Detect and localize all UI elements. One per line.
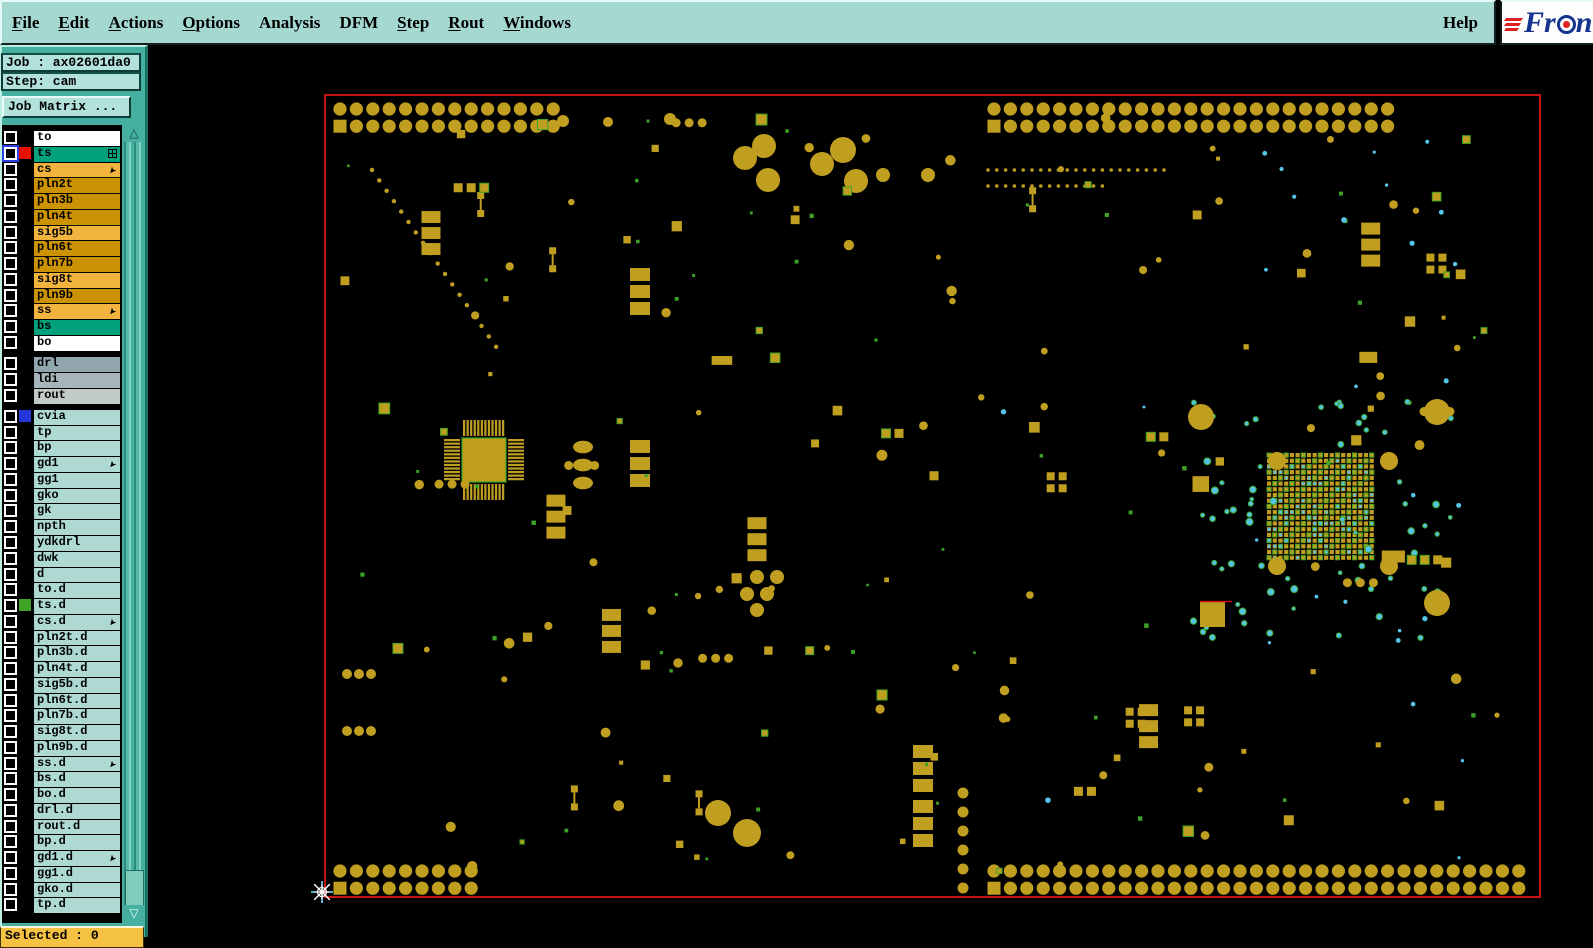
layer-checkbox-gd1.d[interactable] xyxy=(4,851,17,864)
frontline-logo: Fr n xyxy=(1500,0,1593,45)
layer-checkbox-ts[interactable] xyxy=(4,147,17,160)
menu-item-rout[interactable]: Rout xyxy=(448,13,484,33)
layer-row-to.d: to.d xyxy=(2,582,122,598)
layer-row-pln6t.d: pln6t.d xyxy=(2,693,122,709)
layer-row-rout.d: rout.d xyxy=(2,819,122,835)
layer-checkbox-gk[interactable] xyxy=(4,504,17,517)
layer-label-gd1.d[interactable]: gd1.d➤ xyxy=(33,850,121,867)
layer-row-ts: ts xyxy=(2,146,122,162)
layer-label-bs.d[interactable]: bs.d xyxy=(33,771,121,788)
layer-row-pln7b.d: pln7b.d xyxy=(2,708,122,724)
layer-label-to[interactable]: to xyxy=(33,130,121,147)
pcb-crosshair-cursor xyxy=(311,881,333,903)
layer-label-rout[interactable]: rout xyxy=(33,388,121,405)
layer-checkbox-drl.d[interactable] xyxy=(4,804,17,817)
layer-label-ydkdrl[interactable]: ydkdrl xyxy=(33,535,121,552)
layer-checkbox-cs[interactable] xyxy=(4,163,17,176)
layer-row-bp.d: bp.d xyxy=(2,834,122,850)
layer-checkbox-gg1.d[interactable] xyxy=(4,867,17,880)
selected-count-bar: Selected : 0 xyxy=(0,926,144,948)
job-matrix-button[interactable]: Job Matrix ... xyxy=(2,96,131,118)
layer-row-dwk: dwk xyxy=(2,551,122,567)
layer-row-cs: cs➤ xyxy=(2,162,122,178)
layer-label-pln7b.d[interactable]: pln7b.d xyxy=(33,708,121,725)
layer-row-pln2t: pln2t xyxy=(2,177,122,193)
layer-row-pln3b.d: pln3b.d xyxy=(2,645,122,661)
layer-checkbox-gko[interactable] xyxy=(4,489,17,502)
layer-label-pln6t[interactable]: pln6t xyxy=(33,240,121,257)
layer-label-sig8t[interactable]: sig8t xyxy=(33,272,121,289)
layer-label-tp.d[interactable]: tp.d xyxy=(33,897,121,914)
layer-checkbox-gko.d[interactable] xyxy=(4,883,17,896)
layer-checkbox-pln6t.d[interactable] xyxy=(4,694,17,707)
layer-row-d: d xyxy=(2,567,122,583)
layer-row-gg1: gg1 xyxy=(2,472,122,488)
menu-item-analysis[interactable]: Analysis xyxy=(259,13,320,33)
layer-label-gd1[interactable]: gd1➤ xyxy=(33,456,121,473)
menu-bar: FileEditActionsOptionsAnalysisDFMStepRou… xyxy=(0,0,1496,45)
layer-checkbox-ydkdrl[interactable] xyxy=(4,536,17,549)
layer-row-pln3b: pln3b xyxy=(2,193,122,209)
layer-checkbox-bo.d[interactable] xyxy=(4,788,17,801)
layer-label-bp[interactable]: bp xyxy=(33,440,121,457)
layer-label-pln3b.d[interactable]: pln3b.d xyxy=(33,645,121,662)
layer-row-sig5b.d: sig5b.d xyxy=(2,677,122,693)
layer-row-bs.d: bs.d xyxy=(2,771,122,787)
layer-label-pln9b.d[interactable]: pln9b.d xyxy=(33,740,121,757)
layer-row-gd1.d: gd1.d➤ xyxy=(2,850,122,866)
layer-color-swatch-cvia[interactable] xyxy=(19,410,31,422)
job-field: Job : ax02601da0 xyxy=(1,53,141,72)
layer-row-bs: bs xyxy=(2,319,122,335)
layer-checkbox-tp[interactable] xyxy=(4,426,17,439)
layer-checkbox-bp.d[interactable] xyxy=(4,835,17,848)
layer-checkbox-bs.d[interactable] xyxy=(4,772,17,785)
layer-checkbox-cs.d[interactable] xyxy=(4,615,17,628)
layer-checkbox-sig5b[interactable] xyxy=(4,226,17,239)
layer-label-npth[interactable]: npth xyxy=(33,519,121,536)
scroll-down-icon[interactable]: ▽ xyxy=(124,905,144,922)
layer-arrow-icon: ➤ xyxy=(105,305,119,318)
layer-label-ldi[interactable]: ldi xyxy=(33,372,121,389)
pcb-dotted-lines xyxy=(370,168,1166,349)
menu-item-edit[interactable]: Edit xyxy=(58,13,89,33)
layer-label-pln2t[interactable]: pln2t xyxy=(33,177,121,194)
layer-row-drl: drl xyxy=(2,356,122,372)
step-field: Step: cam xyxy=(1,72,141,91)
layer-checkbox-gd1[interactable] xyxy=(4,457,17,470)
layer-checkbox-pln7b.d[interactable] xyxy=(4,709,17,722)
layer-label-to.d[interactable]: to.d xyxy=(33,582,121,599)
layer-checkbox-pln7b[interactable] xyxy=(4,257,17,270)
layer-label-pln7b[interactable]: pln7b xyxy=(33,256,121,273)
menu-item-dfm[interactable]: DFM xyxy=(339,13,378,33)
layer-row-bo: bo xyxy=(2,335,122,351)
layer-checkbox-pln4t[interactable] xyxy=(4,210,17,223)
layer-row-to: to xyxy=(2,130,122,146)
layer-label-cs[interactable]: cs➤ xyxy=(33,162,121,179)
layer-row-gg1.d: gg1.d xyxy=(2,866,122,882)
layer-row-tp.d: tp.d xyxy=(2,897,122,913)
layer-checkbox-cvia[interactable] xyxy=(4,410,17,423)
layer-label-pln4t[interactable]: pln4t xyxy=(33,209,121,226)
menu-item-step[interactable]: Step xyxy=(397,13,429,33)
layer-checkbox-pln9b.d[interactable] xyxy=(4,741,17,754)
layer-label-gg1[interactable]: gg1 xyxy=(33,472,121,489)
layer-checkbox-dwk[interactable] xyxy=(4,552,17,565)
layer-row-gko: gko xyxy=(2,488,122,504)
layer-label-ss[interactable]: ss➤ xyxy=(33,303,121,320)
layer-row-rout: rout xyxy=(2,388,122,404)
layer-label-bo[interactable]: bo xyxy=(33,335,121,352)
layer-color-swatch-ts[interactable] xyxy=(19,147,31,159)
layer-checkbox-pln4t.d[interactable] xyxy=(4,662,17,675)
layer-arrow-icon: ➤ xyxy=(105,757,119,770)
layer-row-drl.d: drl.d xyxy=(2,803,122,819)
layer-list: totscs➤pln2tpln3bpln4tsig5bpln6tpln7bsig… xyxy=(2,125,122,923)
layer-row-gko.d: gko.d xyxy=(2,882,122,898)
layer-checkbox-bo[interactable] xyxy=(4,336,17,349)
layer-row-ss.d: ss.d➤ xyxy=(2,756,122,772)
layer-checkbox-pln9b[interactable] xyxy=(4,289,17,302)
logo-text-n: n xyxy=(1576,3,1593,43)
layer-checkbox-to.d[interactable] xyxy=(4,583,17,596)
layer-label-d[interactable]: d xyxy=(33,567,121,584)
layer-row-pln6t: pln6t xyxy=(2,240,122,256)
layer-checkbox-sig5b.d[interactable] xyxy=(4,678,17,691)
layer-label-pln3b[interactable]: pln3b xyxy=(33,193,121,210)
layer-label-bp.d[interactable]: bp.d xyxy=(33,834,121,851)
logo-target-icon xyxy=(1557,15,1576,34)
layer-list-scrollbar[interactable]: △ ▽ xyxy=(124,125,144,922)
layer-checkbox-ss.d[interactable] xyxy=(4,757,17,770)
layer-label-cs.d[interactable]: cs.d➤ xyxy=(33,614,121,631)
layer-checkbox-gg1[interactable] xyxy=(4,473,17,486)
layer-row-cvia: cvia xyxy=(2,409,122,425)
layer-row-bo.d: bo.d xyxy=(2,787,122,803)
board-outline xyxy=(325,95,1540,897)
pcb-workspace[interactable] xyxy=(148,45,1593,937)
menu-item-options[interactable]: Options xyxy=(182,13,240,33)
layer-checkbox-d[interactable] xyxy=(4,568,17,581)
layer-row-gd1: gd1➤ xyxy=(2,456,122,472)
menu-item-actions[interactable]: Actions xyxy=(109,13,164,33)
layer-checkbox-bp[interactable] xyxy=(4,441,17,454)
layer-row-sig8t.d: sig8t.d xyxy=(2,724,122,740)
layer-label-ss.d[interactable]: ss.d➤ xyxy=(33,756,121,773)
layer-label-gko.d[interactable]: gko.d xyxy=(33,882,121,899)
layer-checkbox-tp.d[interactable] xyxy=(4,898,17,911)
layer-label-pln2t.d[interactable]: pln2t.d xyxy=(33,630,121,647)
layer-row-tp: tp xyxy=(2,425,122,441)
layer-checkbox-sig8t[interactable] xyxy=(4,273,17,286)
layer-row-npth: npth xyxy=(2,519,122,535)
menu-item-file[interactable]: File xyxy=(12,13,39,33)
layer-row-ldi: ldi xyxy=(2,372,122,388)
menu-item-windows[interactable]: Windows xyxy=(503,13,571,33)
layer-checkbox-rout[interactable] xyxy=(4,389,17,402)
layer-arrow-icon: ➤ xyxy=(105,615,119,628)
layer-checkbox-bs[interactable] xyxy=(4,320,17,333)
layer-checkbox-pln2t[interactable] xyxy=(4,178,17,191)
layer-grid-icon xyxy=(108,149,117,158)
logo-speedlines-icon xyxy=(1505,18,1522,31)
layer-label-pln9b[interactable]: pln9b xyxy=(33,288,121,305)
layer-label-cvia[interactable]: cvia xyxy=(33,409,121,426)
layer-row-bp: bp xyxy=(2,440,122,456)
layer-label-drl.d[interactable]: drl.d xyxy=(33,803,121,820)
scrollbar-thumb[interactable] xyxy=(125,870,144,906)
layer-label-gko[interactable]: gko xyxy=(33,488,121,505)
menu-items: FileEditActionsOptionsAnalysisDFMStepRou… xyxy=(12,13,1443,33)
layer-checkbox-to[interactable] xyxy=(4,131,17,144)
layer-checkbox-npth[interactable] xyxy=(4,520,17,533)
layer-row-pln9b.d: pln9b.d xyxy=(2,740,122,756)
layer-label-bs[interactable]: bs xyxy=(33,319,121,336)
layer-label-ts[interactable]: ts xyxy=(33,146,121,163)
layer-label-rout.d[interactable]: rout.d xyxy=(33,819,121,836)
layer-arrow-icon: ➤ xyxy=(105,163,119,176)
layer-checkbox-ts.d[interactable] xyxy=(4,599,17,612)
layer-row-pln9b: pln9b xyxy=(2,288,122,304)
layer-label-bo.d[interactable]: bo.d xyxy=(33,787,121,804)
layer-checkbox-sig8t.d[interactable] xyxy=(4,725,17,738)
layer-checkbox-rout.d[interactable] xyxy=(4,820,17,833)
layer-label-dwk[interactable]: dwk xyxy=(33,551,121,568)
layer-label-drl[interactable]: drl xyxy=(33,356,121,373)
layer-label-gk[interactable]: gk xyxy=(33,503,121,520)
layer-row-pln4t: pln4t xyxy=(2,209,122,225)
layer-color-swatch-ts.d[interactable] xyxy=(19,599,31,611)
layer-row-ydkdrl: ydkdrl xyxy=(2,535,122,551)
layer-row-pln4t.d: pln4t.d xyxy=(2,661,122,677)
layer-checkbox-pln3b.d[interactable] xyxy=(4,646,17,659)
layer-row-ts.d: ts.d xyxy=(2,598,122,614)
layer-label-ts.d[interactable]: ts.d xyxy=(33,598,121,615)
layer-checkbox-drl[interactable] xyxy=(4,357,17,370)
layer-row-sig5b: sig5b xyxy=(2,225,122,241)
layer-label-sig5b[interactable]: sig5b xyxy=(33,225,121,242)
layer-label-pln6t.d[interactable]: pln6t.d xyxy=(33,693,121,710)
layer-label-tp[interactable]: tp xyxy=(33,425,121,442)
layer-label-pln4t.d[interactable]: pln4t.d xyxy=(33,661,121,678)
layer-row-pln7b: pln7b xyxy=(2,256,122,272)
layer-label-sig5b.d[interactable]: sig5b.d xyxy=(33,677,121,694)
layer-arrow-icon: ➤ xyxy=(105,851,119,864)
layer-arrow-icon: ➤ xyxy=(105,457,119,470)
pcb-bga-grid xyxy=(1190,399,1453,640)
logo-text-fr: Fr xyxy=(1524,3,1556,43)
layer-checkbox-pln2t.d[interactable] xyxy=(4,631,17,644)
menu-item-help[interactable]: Help xyxy=(1443,13,1478,33)
layer-label-sig8t.d[interactable]: sig8t.d xyxy=(33,724,121,741)
layer-row-ss: ss➤ xyxy=(2,303,122,319)
layer-checkbox-pln3b[interactable] xyxy=(4,194,17,207)
layer-row-gk: gk xyxy=(2,503,122,519)
layer-row-cs.d: cs.d➤ xyxy=(2,614,122,630)
layer-label-gg1.d[interactable]: gg1.d xyxy=(33,866,121,883)
layer-row-pln2t.d: pln2t.d xyxy=(2,630,122,646)
layer-checkbox-ldi[interactable] xyxy=(4,373,17,386)
layer-row-sig8t: sig8t xyxy=(2,272,122,288)
layer-checkbox-pln6t[interactable] xyxy=(4,241,17,254)
scroll-up-icon[interactable]: △ xyxy=(124,125,144,142)
layer-checkbox-ss[interactable] xyxy=(4,304,17,317)
